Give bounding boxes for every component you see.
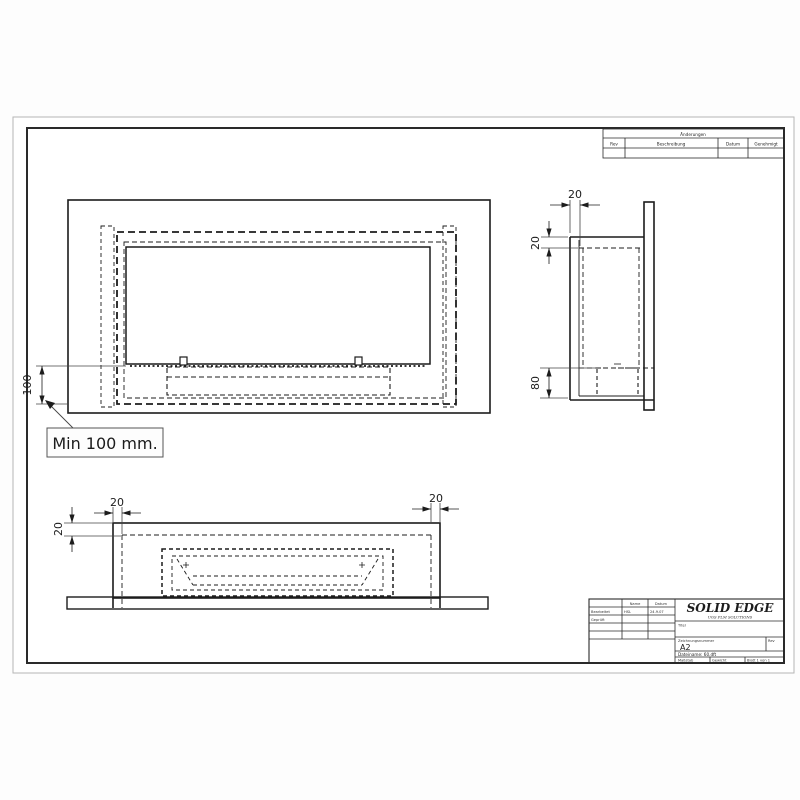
tb-row1-label: Bearbeitet (591, 610, 610, 614)
revision-col-date: Datum (726, 142, 740, 147)
tb-sheet-value: Blatt 1 von 1 (747, 659, 770, 663)
front-clip-right (355, 357, 362, 365)
dim-bottom-20-right-text: 20 (429, 492, 443, 505)
revision-table-title: Änderungen (680, 132, 706, 137)
tb-rev-label: Rev (768, 639, 776, 643)
dim-side-20-top-text: 20 (568, 188, 582, 201)
tb-header-name: Name (630, 602, 641, 606)
revision-col-desc: Beschreibung (657, 142, 686, 147)
dim-side-20-left-text: 20 (529, 236, 542, 250)
tb-weight-label: Gewicht (712, 659, 727, 663)
tb-row1-date: 24.9.07 (650, 610, 664, 614)
tb-title-label: Titel (677, 624, 686, 628)
tb-file-line: Dateiname: 60.dft (678, 652, 717, 657)
tb-scale-label: Maßstab (678, 659, 694, 663)
dim-bottom-20-left-text: 20 (110, 496, 124, 509)
solid-edge-logo: SOLID EDGE (687, 601, 775, 615)
technical-drawing: Änderungen Rev Beschreibung Datum Genehm… (0, 0, 800, 800)
tb-row2-label: Geprüft (591, 618, 605, 622)
revision-col-appr: Genehmigt (754, 142, 778, 147)
tb-header-date: Datum (655, 602, 668, 606)
dim-bottom-20-side-text: 20 (52, 522, 65, 536)
revision-col-rev: Rev (610, 142, 618, 147)
drawing-page: Änderungen Rev Beschreibung Datum Genehm… (0, 0, 800, 800)
solid-edge-sub: UGS PLM SOLUTIONS (708, 615, 753, 620)
dim-front-100-text: 100 (21, 375, 34, 396)
min-note-text: Min 100 mm. (52, 434, 157, 453)
front-clip-left (180, 357, 187, 365)
dim-side-80-text: 80 (529, 376, 542, 390)
tb-row1-name: HSL (624, 610, 631, 614)
